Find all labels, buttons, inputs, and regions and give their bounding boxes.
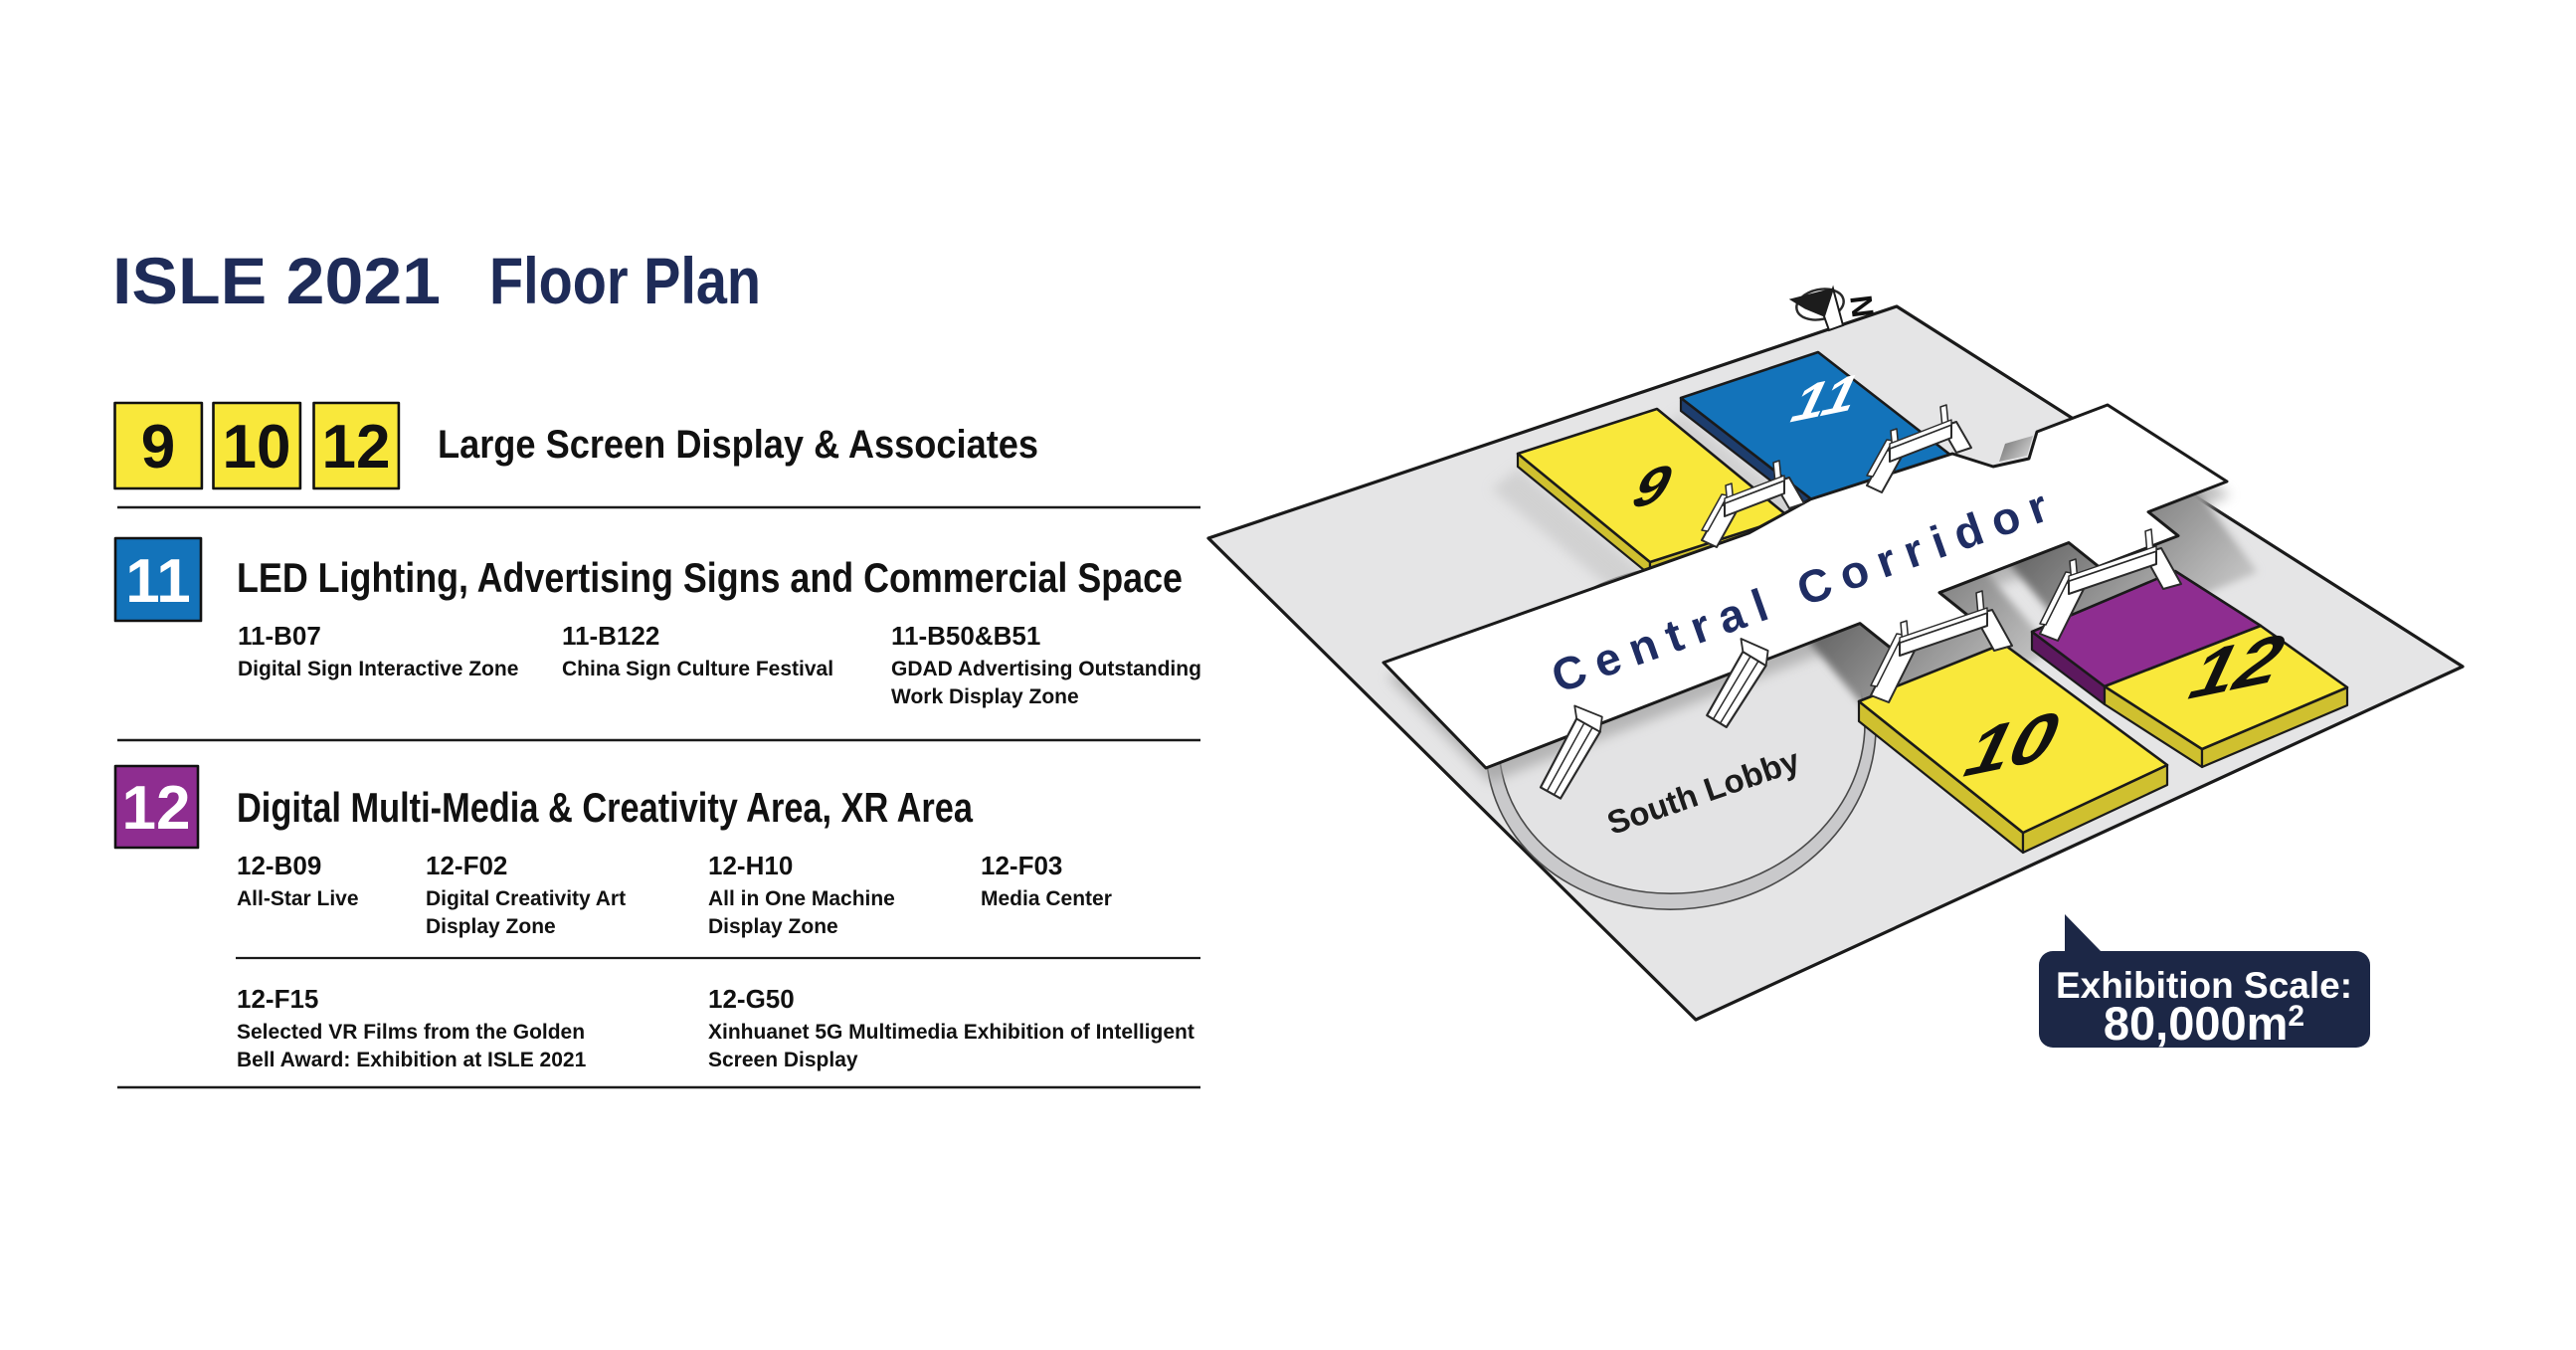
svg-text:Selected VR Films from the Gol: Selected VR Films from the Golden (237, 1021, 585, 1044)
svg-text:China Sign Culture Festival: China Sign Culture Festival (562, 658, 833, 680)
svg-text:All in One Machine: All in One Machine (708, 887, 895, 910)
svg-text:Digital Multi-Media & Creativi: Digital Multi-Media & Creativity Area, X… (237, 784, 974, 831)
svg-text:Digital Creativity Art: Digital Creativity Art (426, 887, 626, 910)
svg-text:12-B09: 12-B09 (237, 851, 321, 880)
svg-text:Screen Display: Screen Display (708, 1049, 858, 1071)
svg-text:12-F15: 12-F15 (237, 984, 318, 1014)
svg-text:ISLE 2021: ISLE 2021 (112, 244, 441, 317)
svg-text:N: N (1843, 293, 1880, 319)
svg-text:9: 9 (141, 413, 175, 482)
svg-text:11-B122: 11-B122 (562, 621, 659, 651)
svg-text:Digital Sign Interactive Zone: Digital Sign Interactive Zone (238, 658, 518, 680)
svg-text:Floor Plan: Floor Plan (489, 244, 761, 317)
svg-text:11-B07: 11-B07 (238, 621, 321, 651)
svg-text:Display Zone: Display Zone (708, 915, 838, 938)
svg-text:Display Zone: Display Zone (426, 915, 556, 938)
svg-text:11-B50&B51: 11-B50&B51 (891, 621, 1040, 651)
svg-text:Xinhuanet 5G Multimedia Exhibi: Xinhuanet 5G Multimedia Exhibition of In… (708, 1021, 1195, 1044)
svg-text:Media Center: Media Center (981, 887, 1112, 910)
svg-text:12-F03: 12-F03 (981, 851, 1062, 880)
svg-text:12: 12 (122, 774, 191, 843)
svg-text:Large Screen Display & Associa: Large Screen Display & Associates (438, 423, 1038, 467)
svg-text:10: 10 (223, 413, 291, 482)
svg-text:12: 12 (322, 413, 391, 482)
svg-text:80,000m2: 80,000m2 (2104, 997, 2304, 1050)
svg-text:LED Lighting, Advertising Sign: LED Lighting, Advertising Signs and Comm… (237, 554, 1183, 601)
svg-text:Bell Award: Exhibition at ISLE: Bell Award: Exhibition at ISLE 2021 (237, 1049, 587, 1071)
svg-text:Work Display Zone: Work Display Zone (891, 685, 1079, 708)
svg-text:11: 11 (125, 547, 191, 616)
svg-text:12-G50: 12-G50 (708, 984, 795, 1014)
svg-text:12-F02: 12-F02 (426, 851, 507, 880)
svg-text:All-Star Live: All-Star Live (237, 887, 359, 910)
svg-text:12-H10: 12-H10 (708, 851, 793, 880)
svg-text:GDAD Advertising Outstanding: GDAD Advertising Outstanding (891, 658, 1201, 680)
